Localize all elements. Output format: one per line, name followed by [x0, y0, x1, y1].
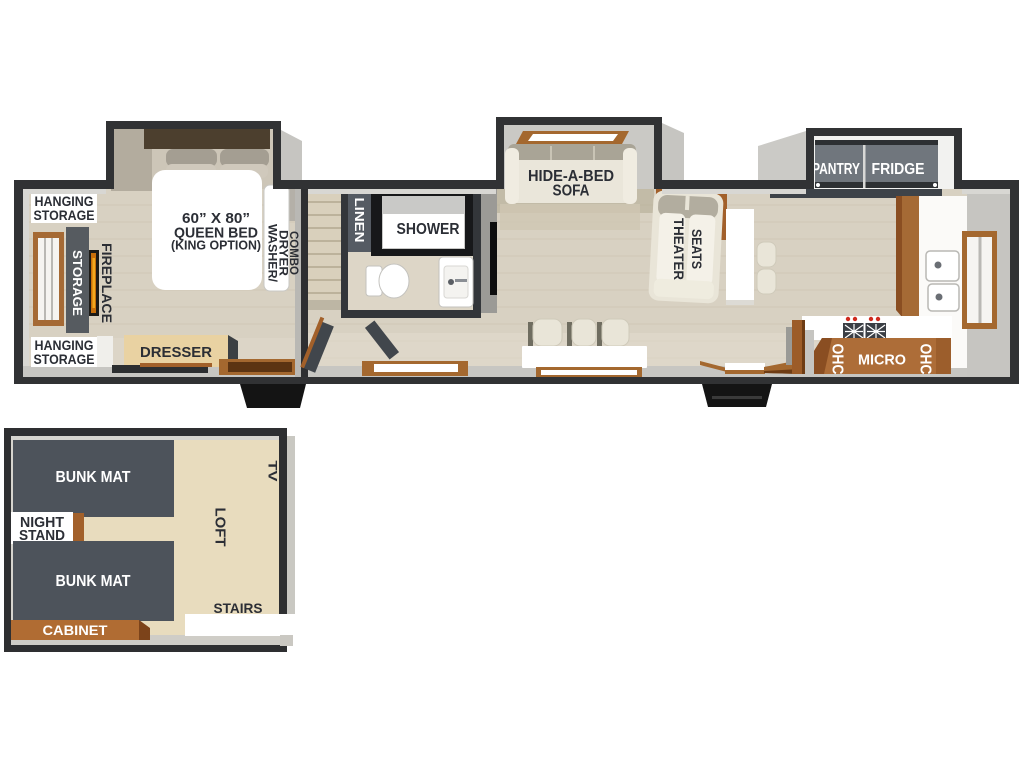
svg-text:DRYER: DRYER: [276, 230, 288, 277]
svg-text:TV: TV: [266, 461, 280, 482]
svg-text:BUNK MAT: BUNK MAT: [56, 469, 131, 486]
svg-text:LOFT: LOFT: [212, 508, 229, 547]
svg-text:THEATER: THEATER: [671, 218, 687, 280]
svg-text:OHC: OHC: [917, 344, 934, 375]
svg-text:STORAGE: STORAGE: [70, 250, 85, 316]
svg-text:LINEN: LINEN: [352, 198, 367, 243]
svg-text:COMBO: COMBO: [287, 231, 299, 275]
svg-text:STAIRS: STAIRS: [214, 600, 263, 616]
svg-text:FRIDGE: FRIDGE: [872, 161, 925, 178]
svg-text:SHOWER: SHOWER: [397, 221, 460, 238]
svg-text:DRESSER: DRESSER: [140, 344, 212, 361]
svg-text:WASHER/: WASHER/: [265, 224, 277, 283]
svg-text:CABINET: CABINET: [43, 622, 108, 638]
svg-text:STORAGE: STORAGE: [34, 351, 95, 367]
svg-text:PANTRY: PANTRY: [812, 161, 861, 178]
svg-text:MICRO: MICRO: [858, 352, 906, 369]
svg-text:SOFA: SOFA: [553, 183, 590, 200]
svg-text:SEATS: SEATS: [689, 229, 705, 269]
svg-text:OHC: OHC: [829, 344, 846, 375]
svg-text:(KING OPTION): (KING OPTION): [171, 239, 261, 253]
svg-text:STORAGE: STORAGE: [34, 207, 95, 223]
svg-text:FIREPLACE: FIREPLACE: [99, 243, 115, 323]
svg-text:BUNK MAT: BUNK MAT: [56, 573, 131, 590]
